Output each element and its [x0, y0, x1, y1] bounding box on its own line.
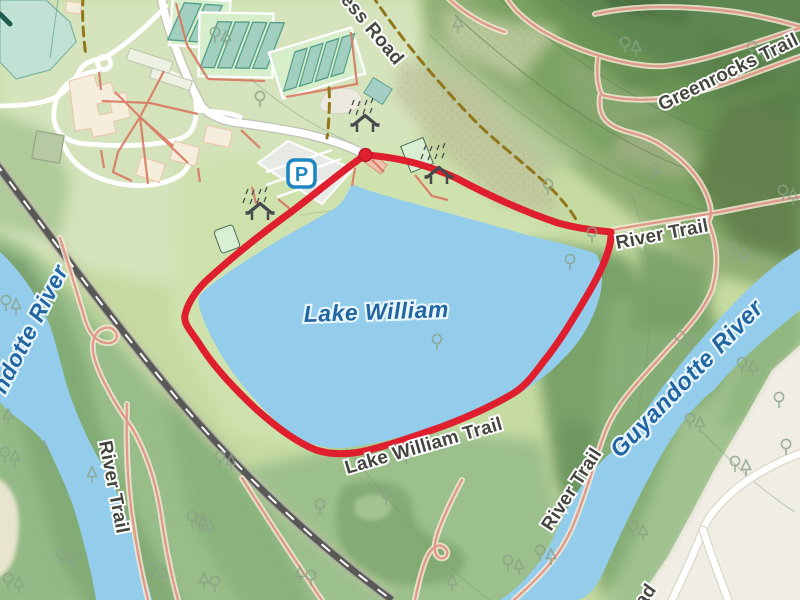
svg-text:Lake William: Lake William [303, 296, 449, 327]
svg-text:P: P [295, 164, 308, 186]
